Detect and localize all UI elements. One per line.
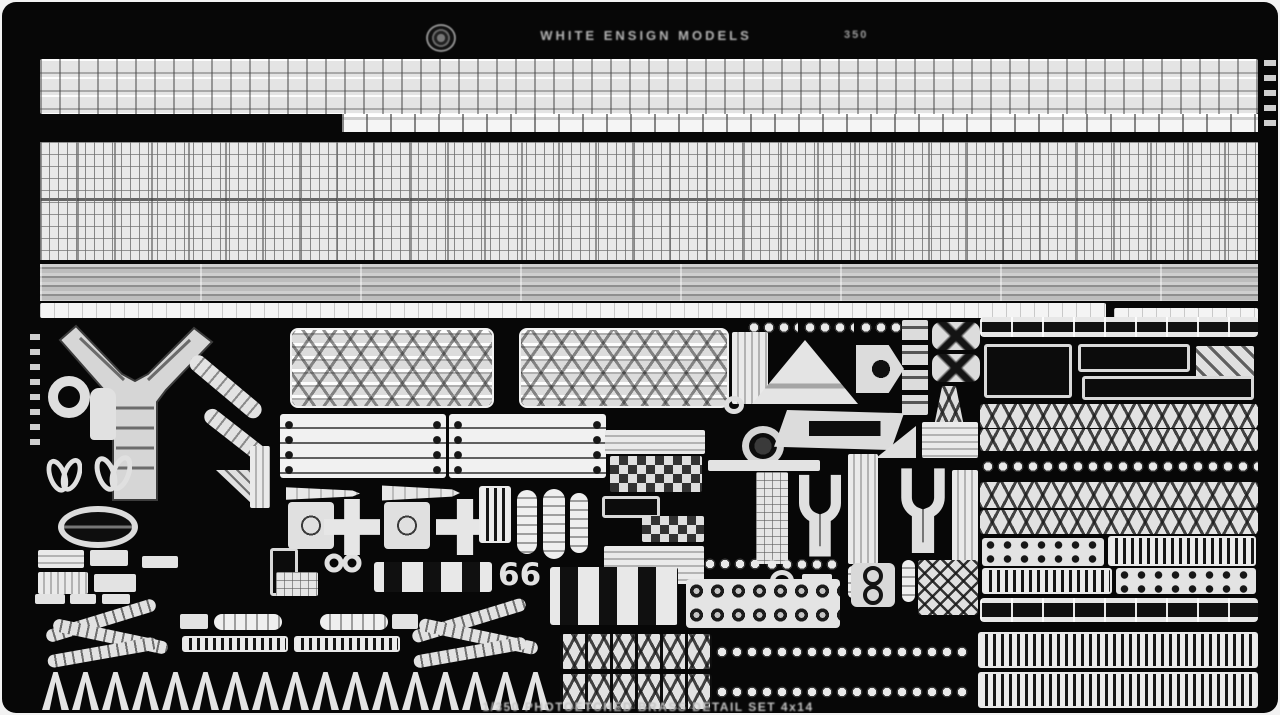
barrel-1 [214,614,282,630]
lattice-boom-1 [290,328,494,408]
tab-1 [35,594,65,604]
square-stack [902,320,928,415]
segment-bar [980,317,1258,337]
pin-3 [902,560,915,602]
tab-2 [70,594,96,604]
railing-stock-extension [342,114,1258,132]
plate-c [38,572,88,594]
railing-stock-band [40,59,1258,114]
fret-photo: WHITE ENSIGN MODELS 350 66 1/350 PHOTOET… [2,2,1278,713]
barrel-base-1 [182,636,288,652]
edge-bar [980,598,1258,622]
capsule-part-1 [517,490,537,554]
boat-chock-panel-2 [449,414,606,478]
tall-plate-2 [848,454,878,564]
taper-plate [1082,376,1254,400]
capsule-part-3 [570,493,588,553]
tall-plate-1 [756,472,788,564]
chain-segment-1 [746,320,798,335]
lattice-cluster-2 [410,606,544,670]
checker-plate-2 [642,516,704,542]
mini-grid-plate [276,572,318,596]
slat-plate-2 [982,568,1112,594]
chain-segment-2 [802,320,854,335]
plate-d [94,574,136,592]
plate-with-circle-2 [384,502,430,549]
slotted-panel [550,567,678,625]
x-box-2 [932,354,980,382]
ring-grid-panel [686,579,840,628]
large-ring [48,376,90,418]
slat-plate-1 [1108,536,1256,566]
truss-strip-1 [980,404,1258,428]
bottle-part [90,388,116,440]
lattice-cluster-1 [44,606,174,668]
dot-plate-1 [982,538,1104,566]
hook-pair: 66 [498,560,538,594]
pentagon-plate [856,345,904,393]
yoke-part-2 [894,460,952,560]
boat-chock-panel-1 [280,414,446,478]
step-plate-2 [1078,344,1190,372]
step-plate [602,496,660,518]
tab-3 [102,594,130,604]
tapered-strip-2 [382,484,460,502]
accommodation-ladder-strip [40,303,1106,318]
barrel-base-2 [294,636,400,652]
yoke-part-1 [792,468,848,562]
oval-chain-strip [980,454,1258,479]
fret-parts-layer: 66 [2,2,1278,713]
oval-boat-part [58,506,138,548]
trapezoid-plate [774,410,904,450]
plate-a [38,550,84,568]
truss-strip-3 [980,482,1258,508]
tapered-strip-1 [286,486,360,501]
fret-footer: 1/350 PHOTOETCHED BRASS DETAIL SET 4x14 [38,698,1258,713]
vertical-grate [479,486,511,543]
capsule-part-2 [543,489,565,559]
window-frame-row [374,562,492,592]
double-ring-plate [850,562,896,608]
plate-b [90,550,128,566]
ring-pair [324,552,362,574]
truss-chain-strip-1a [560,634,712,669]
barrel-2 [320,614,388,630]
truss-strip-4 [980,510,1258,534]
tall-plate [250,446,270,508]
checker-plate-1 [610,456,702,492]
edge-marks-right [1264,60,1276,132]
diamond-lattice-square [918,560,978,615]
edge-marks-left [30,334,40,454]
truss-strip-2 [980,429,1258,451]
small-ring-1 [724,396,744,414]
diamond-bar [764,558,840,571]
truss-chain-strip-1b [714,640,968,664]
step-plate-1 [984,344,1072,398]
lined-plate-right [922,422,978,458]
tall-plate-3 [952,470,978,562]
leaf-pair-1 [46,449,82,495]
dot-plate-2 [1116,568,1256,594]
lattice-boom-2 [519,328,729,408]
x-box-1 [932,322,980,350]
checker-bar [605,430,705,454]
fret-caption: 1/350 PHOTOETCHED BRASS DETAIL SET 4x14 [482,700,813,713]
barrel-mount-1 [180,614,208,629]
grate-strip-1 [978,632,1258,668]
small-bar [142,556,178,568]
mesh-grating-panel [40,142,1258,260]
leaf-pair-2 [94,446,132,494]
tri-hatch-plate [216,470,252,504]
inclined-ladder-band [40,264,1258,301]
link-bar [702,558,760,570]
